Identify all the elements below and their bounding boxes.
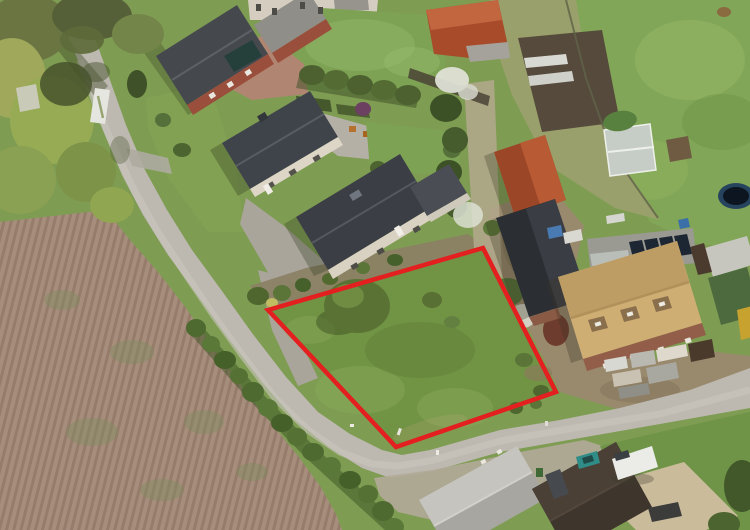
conifer [127,70,147,98]
roadside-post-1 [350,424,354,427]
plot-bush-2 [444,316,460,328]
north-wall-window-3 [300,2,305,9]
tree-canopy-3 [112,14,164,54]
bed-shrub-2 [273,285,291,301]
purple-shrub [355,102,371,116]
north-wall-window-2 [272,8,277,15]
tree-row-2 [323,70,349,90]
roadside-post-3 [545,421,548,426]
garden-shrub-3 [155,113,171,127]
aerial-photo [0,0,750,530]
hedgerow-bush-5 [242,382,264,402]
north-wall-window-4 [318,7,323,14]
tree-row-1 [299,65,325,85]
blossom-tree-1b [458,84,478,100]
garden-shrub-4 [173,143,191,157]
hedgerow-bush-11 [339,471,361,489]
hedgerow-bush-9 [302,443,324,461]
bed-shrub-5 [356,262,370,274]
bed-shrub-1 [247,287,269,305]
field-weed-patch-2 [110,340,154,364]
hedgerow-bush-8 [287,428,307,446]
field-weed-patch-1 [44,290,80,310]
tree-overhang [60,26,104,54]
tree-canopy-8 [90,187,134,223]
green-bin [536,468,543,477]
junk-blue-1 [678,218,690,229]
grazing-animal [717,7,731,17]
plot-lawn-dark [365,322,475,378]
aerial-photo-canvas [0,0,750,530]
tree-row-4 [371,80,397,100]
field-weed-patch-6 [140,479,184,501]
road-dapple-1 [82,62,110,82]
hedgerow-bush-3 [214,351,236,369]
scene-root [0,0,750,530]
roadside-post-2 [436,450,439,455]
tree-row-3 [347,75,373,95]
north-wall-window-1 [256,4,261,11]
hedgerow-bush-2 [202,336,220,352]
meadow-light-patch-1 [635,20,745,100]
bed-shrub-6 [387,254,403,266]
tree-row-5 [395,85,421,105]
hedgerow-bush-13 [372,501,394,521]
hedgerow-bush-12 [358,485,378,503]
field-weed-patch-4 [66,418,118,446]
plot-bush-3 [515,353,533,367]
bed-shrub-3 [295,278,311,292]
tall-hedge-1 [430,94,462,122]
hedgerow-bush-1 [186,319,206,337]
tall-hedge-2 [442,127,468,153]
hedgerow-bush-4 [230,368,248,384]
hedgerow-bush-6 [258,399,278,417]
field-weed-patch-5 [236,463,268,481]
white-shed-left [16,84,40,112]
garden-shed [666,136,692,162]
field-weed-patch-3 [184,410,224,434]
road-dapple-2 [110,136,130,164]
trampoline-mat [723,187,749,205]
hedgerow-bush-7 [271,414,293,432]
plot-bush-1 [422,292,442,308]
hedgerow-bush-10 [321,457,341,475]
patio-planter-1 [349,126,356,132]
